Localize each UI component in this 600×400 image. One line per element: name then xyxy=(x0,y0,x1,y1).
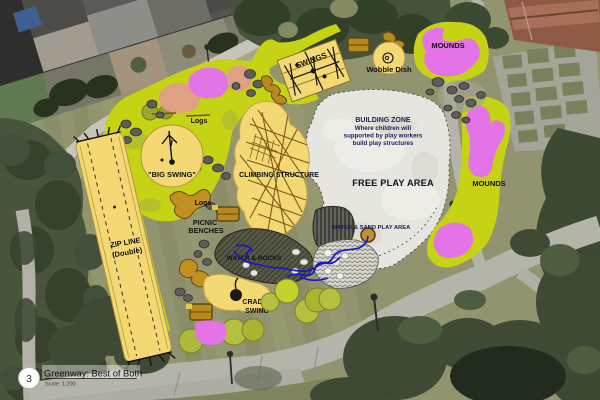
svg-text:MOUNDS: MOUNDS xyxy=(472,179,505,188)
svg-text:Logs: Logs xyxy=(191,118,208,125)
svg-text:supported by play workers: supported by play workers xyxy=(344,133,423,140)
svg-text:WATER & ROCKS: WATER & ROCKS xyxy=(227,255,282,262)
svg-text:Where children will: Where children will xyxy=(355,125,412,132)
svg-text:Wobble Dish: Wobble Dish xyxy=(366,65,412,74)
svg-text:MOUNDS: MOUNDS xyxy=(431,41,464,50)
svg-text:Scale: 1:200: Scale: 1:200 xyxy=(45,382,76,388)
svg-text:WATER & SAND PLAY AREA: WATER & SAND PLAY AREA xyxy=(332,225,411,231)
svg-text:"BIG SWING": "BIG SWING" xyxy=(148,170,196,179)
svg-text:BUILDING ZONE: BUILDING ZONE xyxy=(355,117,411,124)
svg-text:FREE PLAY AREA: FREE PLAY AREA xyxy=(352,178,434,188)
svg-text:CLIMBING STRUCTURE: CLIMBING STRUCTURE xyxy=(239,172,319,179)
svg-text:BENCHES: BENCHES xyxy=(188,226,223,235)
svg-text:3: 3 xyxy=(26,374,32,385)
svg-text:build play structures: build play structures xyxy=(353,140,414,147)
svg-text:Greenway: Best of Both: Greenway: Best of Both xyxy=(44,369,142,379)
svg-text:Logs: Logs xyxy=(195,200,212,207)
